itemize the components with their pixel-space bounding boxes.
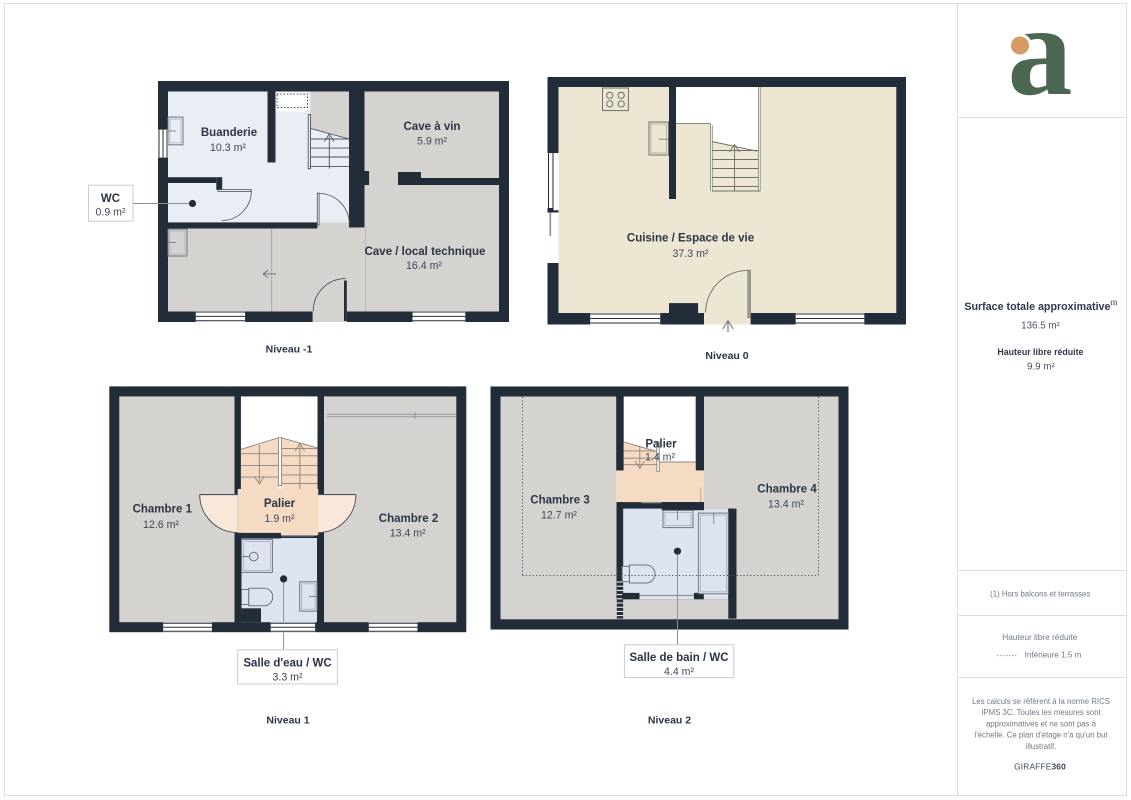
svg-text:9.9 m²: 9.9 m²: [1027, 362, 1056, 373]
svg-text:1.9 m²: 1.9 m²: [264, 513, 294, 525]
svg-text:(1): (1): [1111, 301, 1118, 307]
svg-text:IPMS 3C. Toutes les mesures so: IPMS 3C. Toutes les mesures sont: [981, 708, 1101, 717]
svg-text:Palier: Palier: [645, 439, 677, 451]
svg-text:Cave / local technique: Cave / local technique: [365, 246, 486, 258]
svg-text:37.3 m²: 37.3 m²: [673, 248, 709, 260]
svg-text:Surface totale approximative: Surface totale approximative: [964, 301, 1110, 313]
svg-text:Palier: Palier: [264, 498, 296, 510]
svg-text:1.4 m²: 1.4 m²: [645, 452, 675, 464]
svg-text:3.3 m²: 3.3 m²: [272, 672, 302, 684]
svg-text:Inférieure 1.5 m: Inférieure 1.5 m: [1025, 651, 1082, 660]
svg-text:5.9 m²: 5.9 m²: [417, 136, 447, 148]
svg-text:approximatives et ne sont pas: approximatives et ne sont pas à: [986, 719, 1097, 728]
svg-text:12.6 m²: 12.6 m²: [143, 519, 179, 531]
svg-text:Buanderie: Buanderie: [201, 127, 257, 139]
svg-text:Niveau 2: Niveau 2: [648, 715, 691, 727]
svg-text:GIRAFFE360: GIRAFFE360: [1014, 762, 1066, 772]
svg-text:Cave à vin: Cave à vin: [404, 121, 461, 133]
svg-text:l'échelle. Ce plan d'étage n'a: l'échelle. Ce plan d'étage n'a qu'un but: [975, 731, 1109, 740]
svg-text:Chambre 4: Chambre 4: [757, 484, 817, 496]
svg-text:Hauteur libre réduite: Hauteur libre réduite: [997, 347, 1083, 357]
svg-text:Niveau 0: Niveau 0: [705, 350, 748, 362]
svg-text:136.5 m²: 136.5 m²: [1021, 321, 1060, 332]
svg-text:Chambre 2: Chambre 2: [379, 513, 438, 525]
svg-text:WC: WC: [101, 193, 120, 205]
svg-text:illustratif.: illustratif.: [1026, 742, 1057, 751]
svg-text:12.7 m²: 12.7 m²: [541, 510, 577, 522]
svg-text:Chambre 3: Chambre 3: [530, 495, 589, 507]
svg-text:13.4 m²: 13.4 m²: [768, 499, 804, 511]
svg-text:Cuisine / Espace de vie: Cuisine / Espace de vie: [627, 233, 754, 245]
svg-text:Niveau 1: Niveau 1: [266, 715, 309, 727]
svg-text:13.4 m²: 13.4 m²: [390, 527, 426, 539]
svg-text:Hauteur libre réduite: Hauteur libre réduite: [1002, 632, 1078, 642]
svg-text:10.3 m²: 10.3 m²: [210, 142, 246, 154]
svg-text:16.4 m²: 16.4 m²: [406, 260, 442, 272]
svg-text:0.9 m²: 0.9 m²: [95, 207, 125, 219]
svg-text:Les calculs se réfèrent à la n: Les calculs se réfèrent à la norme RICS: [972, 697, 1110, 706]
svg-text:Salle de bain / WC: Salle de bain / WC: [629, 652, 728, 664]
svg-text:4.4 m²: 4.4 m²: [664, 666, 694, 678]
svg-text:(1) Hors balcons et terrasses: (1) Hors balcons et terrasses: [990, 590, 1090, 599]
svg-text:a: a: [1008, 0, 1073, 123]
svg-text:Salle d'eau / WC: Salle d'eau / WC: [243, 658, 331, 670]
svg-text:Niveau -1: Niveau -1: [266, 344, 313, 356]
svg-text:Chambre 1: Chambre 1: [133, 504, 193, 516]
